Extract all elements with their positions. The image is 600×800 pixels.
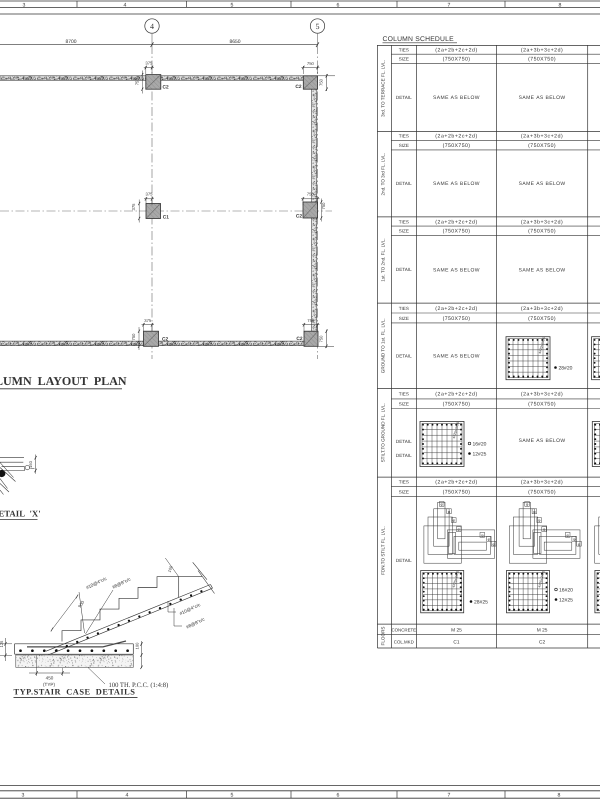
svg-text:2nd. TO 3rd FL. LVL.: 2nd. TO 3rd FL. LVL. (380, 153, 385, 196)
svg-text:(2a+2b+2c+2d): (2a+2b+2c+2d) (435, 219, 477, 225)
svg-text:M 25: M 25 (537, 627, 548, 633)
svg-text:SAME AS BELOW: SAME AS BELOW (519, 181, 566, 187)
svg-text:450: 450 (46, 676, 54, 681)
svg-text:(2a+3b+3c+2d): (2a+3b+3c+2d) (521, 134, 563, 140)
svg-text:750: 750 (307, 192, 315, 197)
svg-text:SIZE: SIZE (399, 402, 409, 407)
svg-text:12#25: 12#25 (559, 598, 573, 604)
svg-text:SAME AS BELOW: SAME AS BELOW (519, 268, 566, 274)
svg-text:3: 3 (22, 793, 25, 799)
svg-text:(2a+2b+2c+2d): (2a+2b+2c+2d) (435, 392, 477, 398)
svg-text:8: 8 (558, 793, 561, 799)
svg-text:M 25: M 25 (451, 627, 462, 633)
svg-text:FLOORS: FLOORS (380, 627, 385, 646)
svg-text:750: 750 (131, 333, 136, 341)
svg-text:6: 6 (337, 2, 340, 8)
svg-text:C2: C2 (296, 214, 302, 220)
svg-text:375: 375 (131, 203, 136, 211)
svg-text:375: 375 (145, 61, 153, 66)
svg-text:5: 5 (231, 793, 234, 799)
svg-text:TYP.STAIR CASE DETAILS: TYP.STAIR CASE DETAILS (14, 688, 136, 697)
svg-text:750: 750 (307, 318, 315, 323)
svg-text:DETAIL: DETAIL (396, 95, 412, 100)
svg-text:SIZE: SIZE (399, 316, 409, 321)
svg-text:SAME AS BELOW: SAME AS BELOW (519, 95, 566, 101)
svg-text:GROUND TO 1st. FL. LVL.: GROUND TO 1st. FL. LVL. (380, 318, 385, 373)
svg-text:(2a+2b+2c+2d): (2a+2b+2c+2d) (435, 134, 477, 140)
svg-text:C1: C1 (163, 215, 169, 221)
svg-text:(750X750): (750X750) (528, 229, 556, 235)
svg-text:(750X750): (750X750) (443, 316, 471, 322)
svg-text:STILT.TO GROUND FL. LVL.: STILT.TO GROUND FL. LVL. (380, 403, 385, 462)
svg-text:(2a+3b+3c+2d): (2a+3b+3c+2d) (521, 48, 563, 54)
svg-text:3: 3 (23, 2, 26, 8)
svg-text:SIZE: SIZE (399, 489, 409, 494)
svg-text:COLUMN SCHEDULE: COLUMN SCHEDULE (383, 36, 455, 43)
svg-text:(2a+3b+3c+2d): (2a+3b+3c+2d) (521, 306, 563, 312)
svg-text:6: 6 (337, 793, 340, 799)
svg-text:DETAIL: DETAIL (396, 558, 412, 563)
svg-text:DETAIL: DETAIL (396, 453, 412, 458)
svg-text:750: 750 (319, 78, 324, 86)
svg-text:(750X750): (750X750) (443, 402, 471, 408)
svg-text:SAME AS BELOW: SAME AS BELOW (433, 95, 480, 101)
svg-text:SIZE: SIZE (399, 229, 409, 234)
svg-text:125: 125 (0, 640, 4, 647)
svg-text:CONCRETE: CONCRETE (391, 627, 416, 632)
svg-text:8700: 8700 (65, 39, 76, 45)
svg-text:TIES: TIES (399, 219, 409, 224)
svg-text:C2: C2 (539, 639, 545, 645)
svg-text:DETAIL: DETAIL (396, 181, 412, 186)
svg-text:TIES: TIES (399, 48, 409, 53)
svg-text:12#25: 12#25 (473, 452, 487, 458)
svg-text:1st. TO 2nd. FL. LVL.: 1st. TO 2nd. FL. LVL. (380, 238, 385, 281)
svg-text:C2: C2 (296, 336, 302, 342)
svg-text:375: 375 (146, 192, 154, 197)
svg-text:(2a+2b+2c+2d): (2a+2b+2c+2d) (435, 480, 477, 486)
svg-text:SAME AS BELOW: SAME AS BELOW (433, 354, 480, 360)
svg-text:(750X750): (750X750) (443, 489, 471, 495)
svg-text:COL.MKD: COL.MKD (394, 639, 414, 644)
svg-text:4: 4 (126, 793, 129, 799)
svg-text:(750X750): (750X750) (443, 143, 471, 149)
svg-text:(750X750): (750X750) (528, 316, 556, 322)
svg-text:DETAIL 'X': DETAIL 'X' (0, 509, 41, 519)
svg-text:5: 5 (231, 2, 234, 8)
svg-text:SAME AS BELOW: SAME AS BELOW (519, 438, 566, 444)
svg-text:(2a+3b+3c+2d): (2a+3b+3c+2d) (521, 219, 563, 225)
svg-text:(750X750): (750X750) (528, 143, 556, 149)
svg-text:16#20: 16#20 (473, 442, 487, 448)
svg-text:(750X750): (750X750) (528, 402, 556, 408)
svg-text:COLUMN LAYOUT PLAN: COLUMN LAYOUT PLAN (0, 374, 127, 388)
svg-text:SIZE: SIZE (399, 143, 409, 148)
svg-text:750: 750 (307, 61, 315, 66)
svg-text:750: 750 (135, 78, 140, 86)
svg-text:SAME AS BELOW: SAME AS BELOW (433, 268, 480, 274)
svg-text:SIZE: SIZE (399, 57, 409, 62)
svg-text:8: 8 (559, 2, 562, 8)
svg-text:(750X750): (750X750) (443, 57, 471, 63)
svg-text:C2: C2 (162, 337, 168, 343)
svg-text:(750X750): (750X750) (528, 489, 556, 495)
svg-text:(2a+2b+2c+2d): (2a+2b+2c+2d) (435, 48, 477, 54)
svg-text:(2a+3b+3c+2d): (2a+3b+3c+2d) (521, 392, 563, 398)
svg-text:28#25: 28#25 (474, 600, 488, 606)
svg-text:TIES: TIES (399, 134, 409, 139)
svg-text:DETAIL: DETAIL (396, 267, 412, 272)
svg-text:DETAIL: DETAIL (396, 353, 412, 358)
svg-text:150: 150 (28, 460, 33, 467)
svg-text:C2: C2 (163, 85, 169, 91)
svg-text:(2a+2b+2c+2d): (2a+2b+2c+2d) (435, 306, 477, 312)
svg-text:4: 4 (150, 22, 154, 31)
svg-text:DETAIL: DETAIL (396, 439, 412, 444)
svg-text:TIES: TIES (399, 392, 409, 397)
svg-text:(750X750): (750X750) (443, 229, 471, 235)
svg-text:C2: C2 (295, 84, 301, 90)
svg-text:7: 7 (448, 2, 451, 8)
svg-text:(750X750): (750X750) (528, 57, 556, 63)
svg-text:7: 7 (448, 793, 451, 799)
svg-text:C1: C1 (453, 639, 459, 645)
svg-text:100: 100 (135, 642, 140, 649)
svg-text:(2a+3b+3c+2d): (2a+3b+3c+2d) (521, 480, 563, 486)
svg-text:3rd. TO TERRACE FL. LVL.: 3rd. TO TERRACE FL. LVL. (380, 60, 385, 117)
svg-text:(TYP): (TYP) (43, 682, 55, 687)
svg-text:4: 4 (124, 2, 127, 8)
svg-text:TIES: TIES (399, 480, 409, 485)
svg-text:16#20: 16#20 (559, 588, 573, 594)
svg-text:28#20: 28#20 (559, 366, 573, 372)
svg-text:8650: 8650 (229, 39, 240, 45)
svg-text:SAME AS BELOW: SAME AS BELOW (433, 181, 480, 187)
svg-text:TIES: TIES (399, 306, 409, 311)
svg-text:5: 5 (316, 22, 320, 31)
svg-text:750: 750 (321, 202, 326, 210)
svg-text:FDN.TO STILT FL. LVL.: FDN.TO STILT FL. LVL. (380, 526, 385, 575)
svg-text:375: 375 (144, 318, 152, 323)
svg-text:750: 750 (319, 335, 324, 343)
